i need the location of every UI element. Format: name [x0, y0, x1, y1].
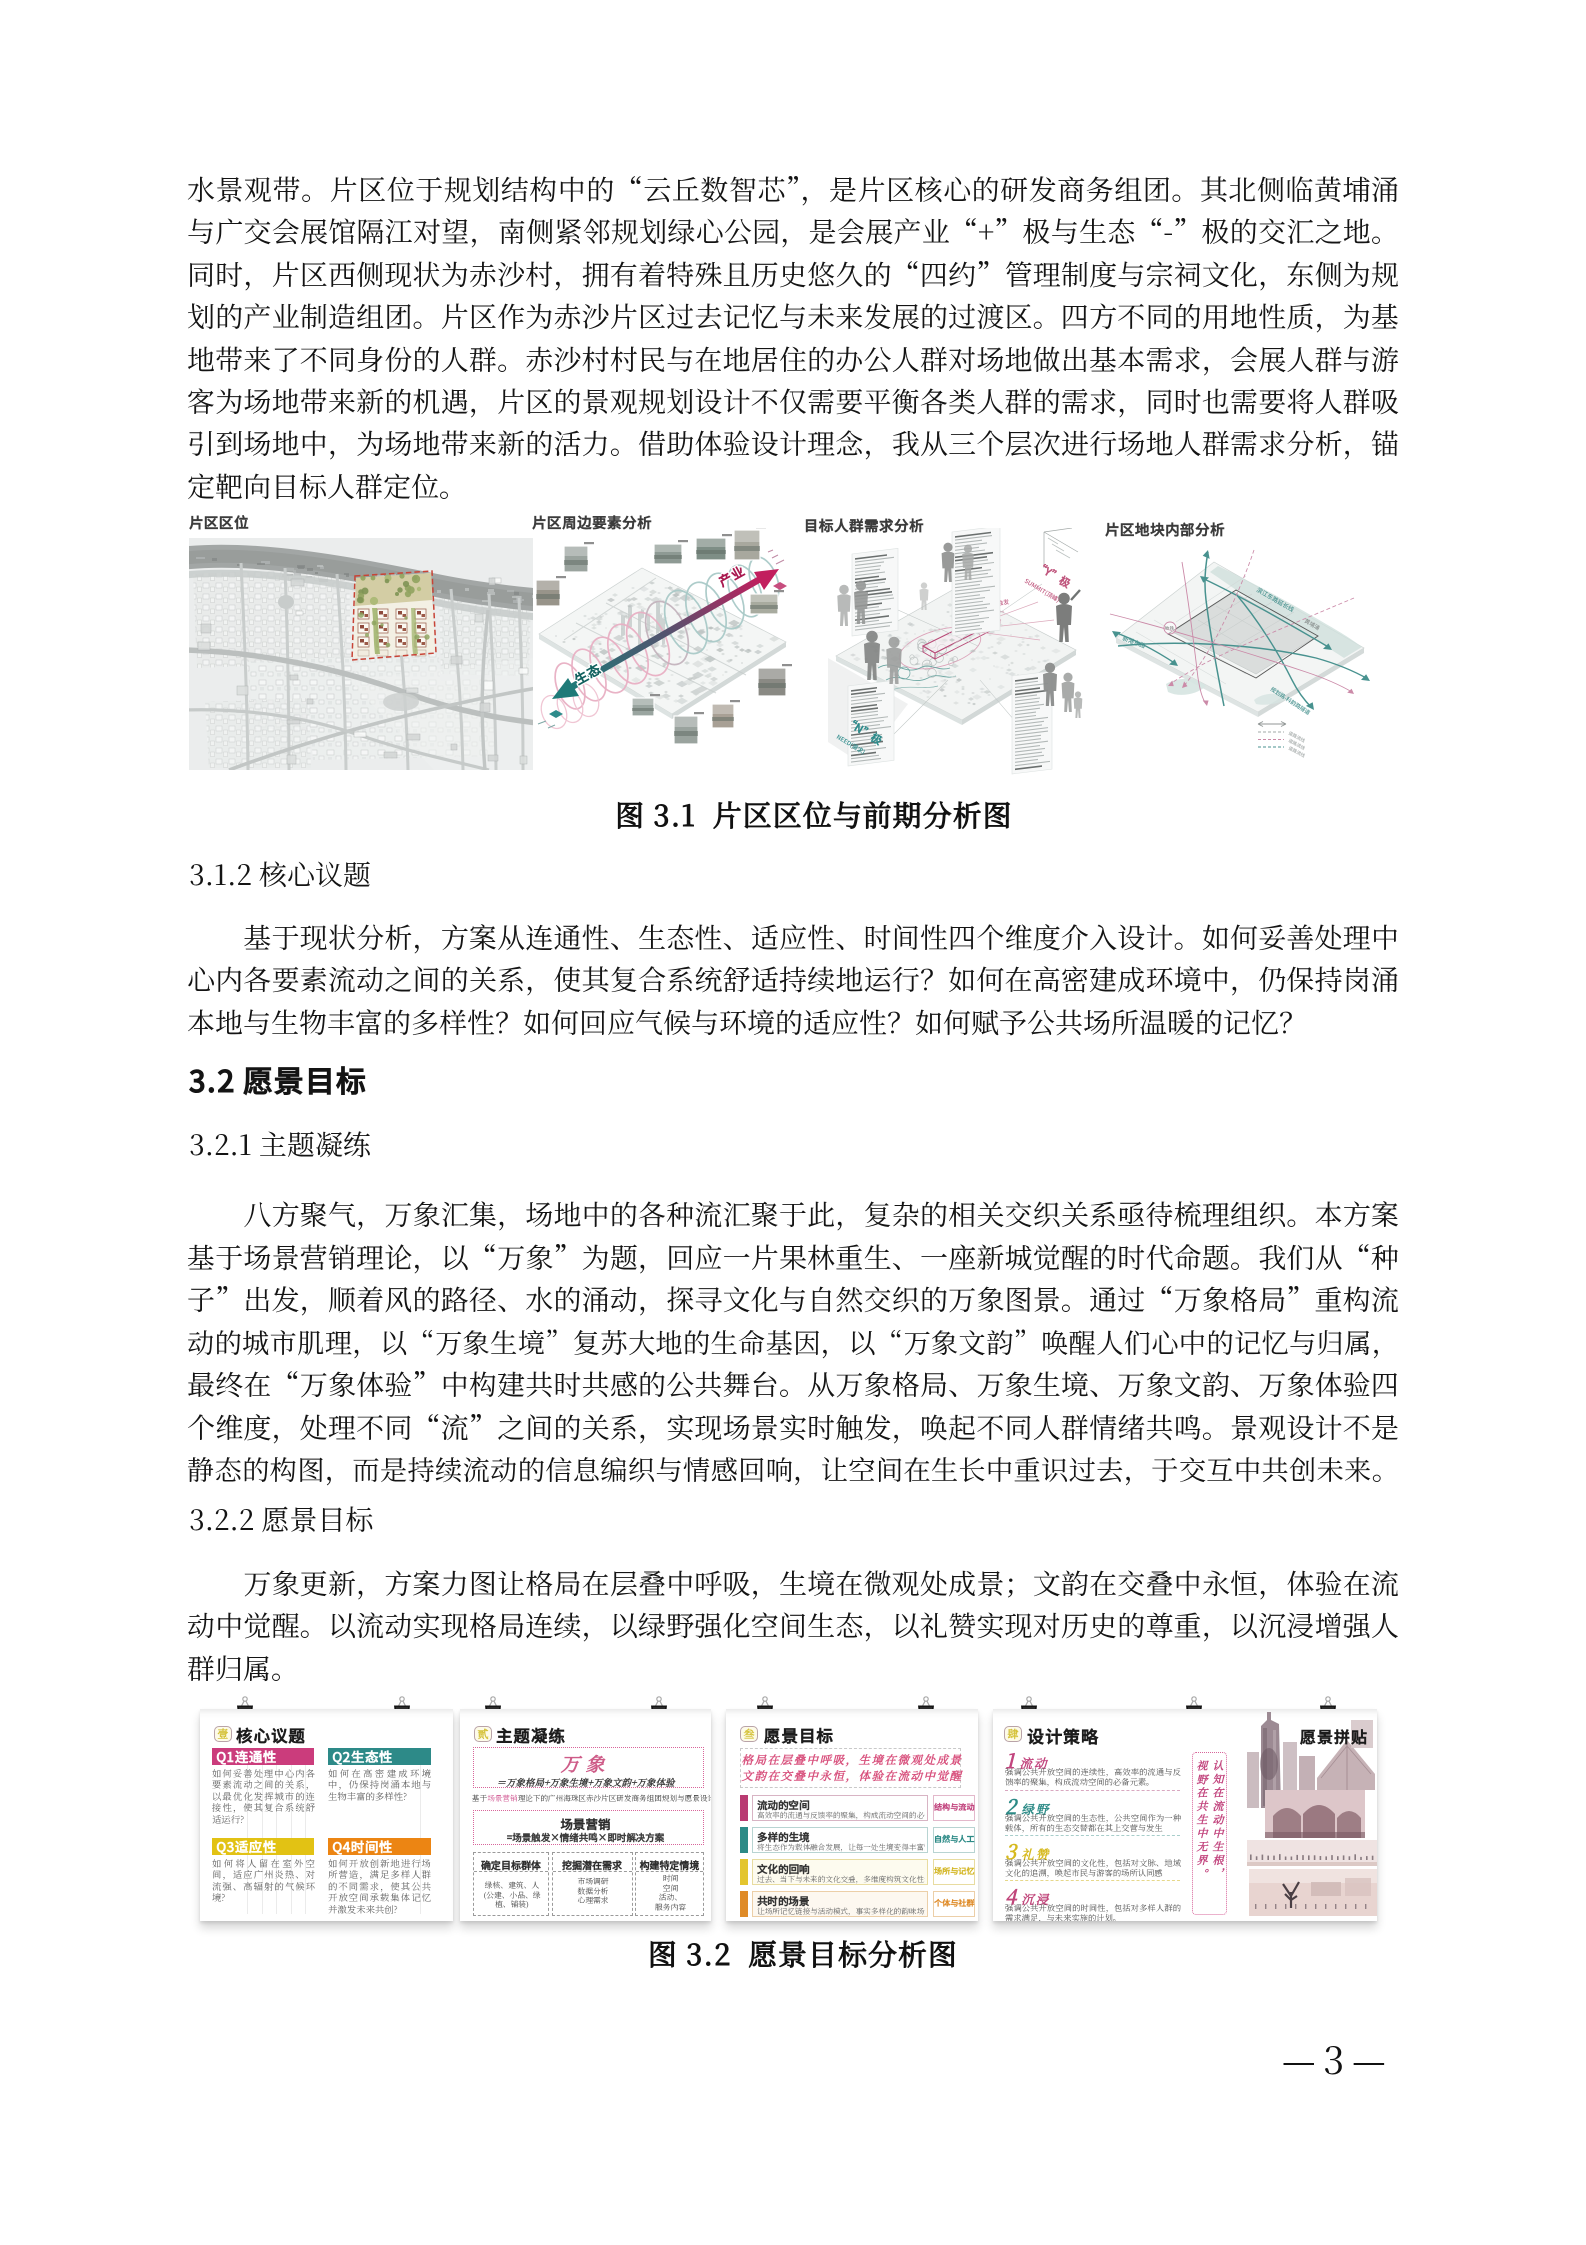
- svg-text:地铁: 地铁: [1164, 625, 1174, 632]
